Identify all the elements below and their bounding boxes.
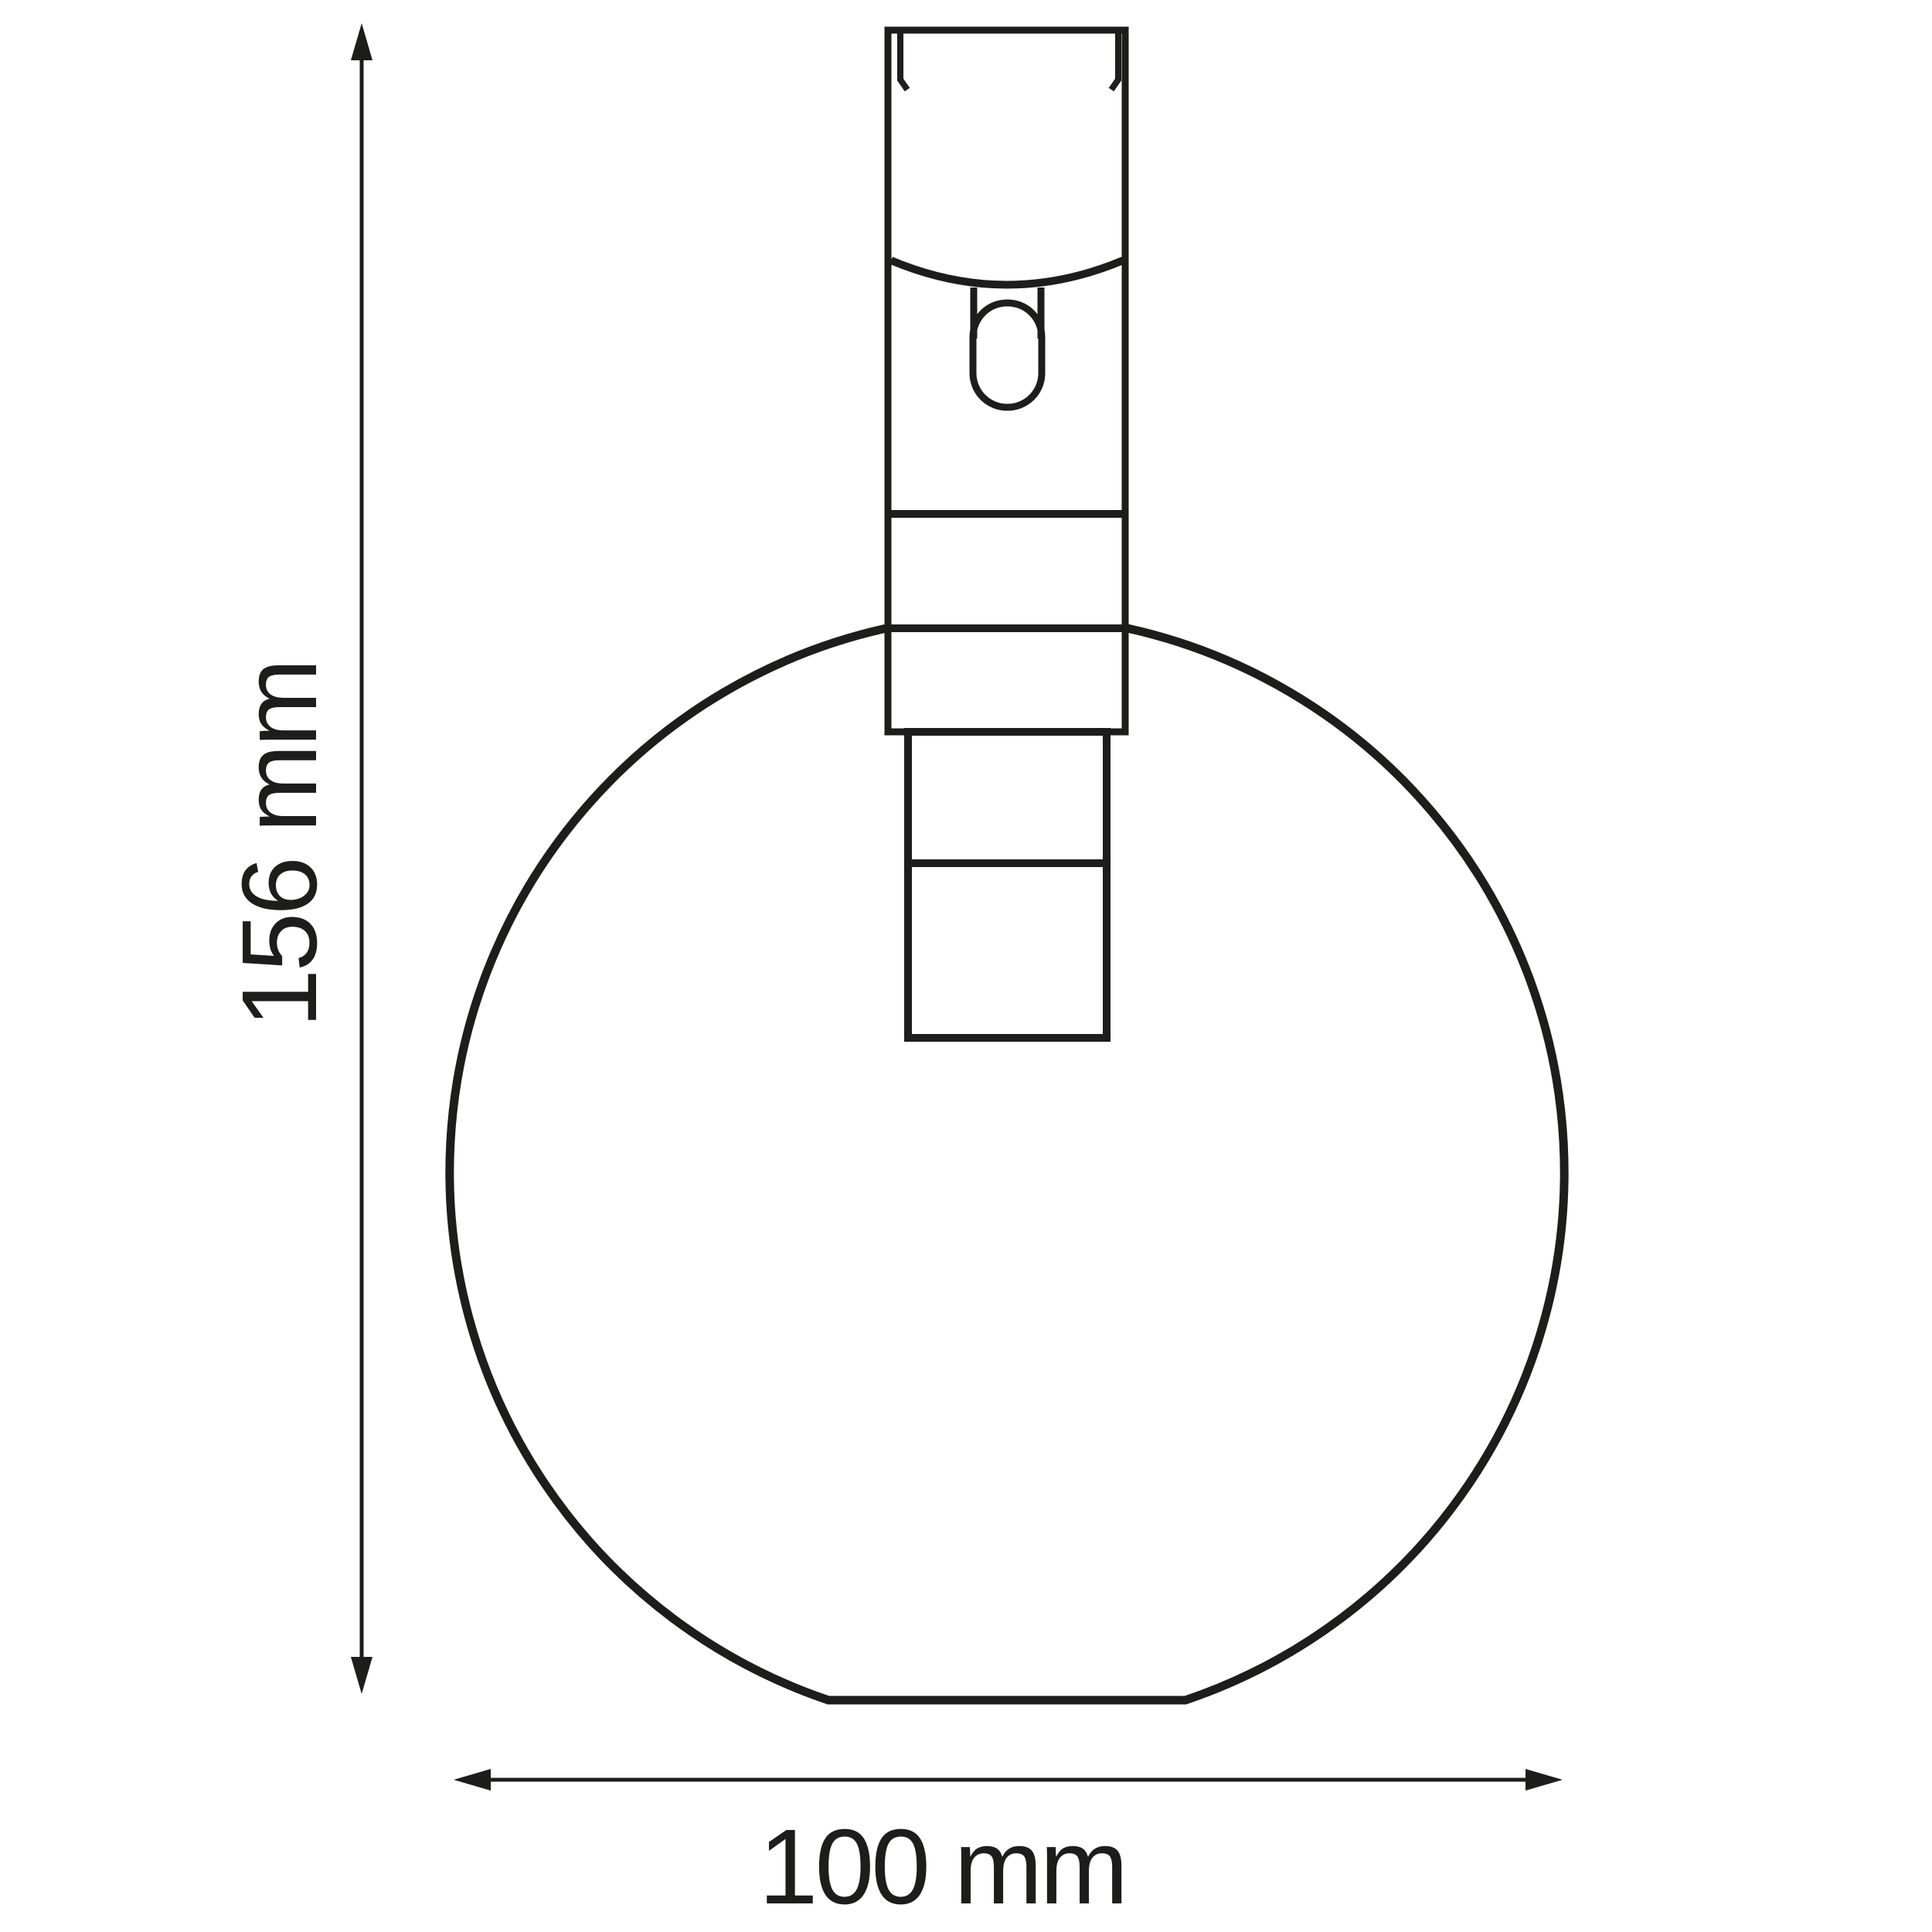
holder-left-clip-slit (900, 33, 907, 90)
height-arrow-down-icon (351, 1657, 372, 1694)
width-arrow-left-icon (454, 1769, 491, 1791)
holder-right-clip-slit (1111, 33, 1118, 90)
width-dimension: 100 mm (454, 1769, 1563, 1927)
height-arrow-up-icon (351, 23, 372, 60)
width-arrow-right-icon (1526, 1769, 1563, 1791)
width-dimension-label: 100 mm (759, 1808, 1126, 1927)
height-dimension: 156 mm (220, 23, 372, 1694)
holder-stem-outline (908, 732, 1107, 1038)
technical-drawing: 156 mm 100 mm (0, 0, 1932, 1932)
globe-outline (450, 628, 1564, 1700)
height-dimension-label: 156 mm (220, 662, 339, 1029)
holder-inner-arc (891, 260, 1123, 285)
globe-shade (450, 628, 1564, 1700)
holder-keyhole-slot (973, 303, 1042, 407)
lamp-holder (885, 30, 1128, 1038)
drawing-canvas: 156 mm 100 mm (0, 0, 1932, 1932)
